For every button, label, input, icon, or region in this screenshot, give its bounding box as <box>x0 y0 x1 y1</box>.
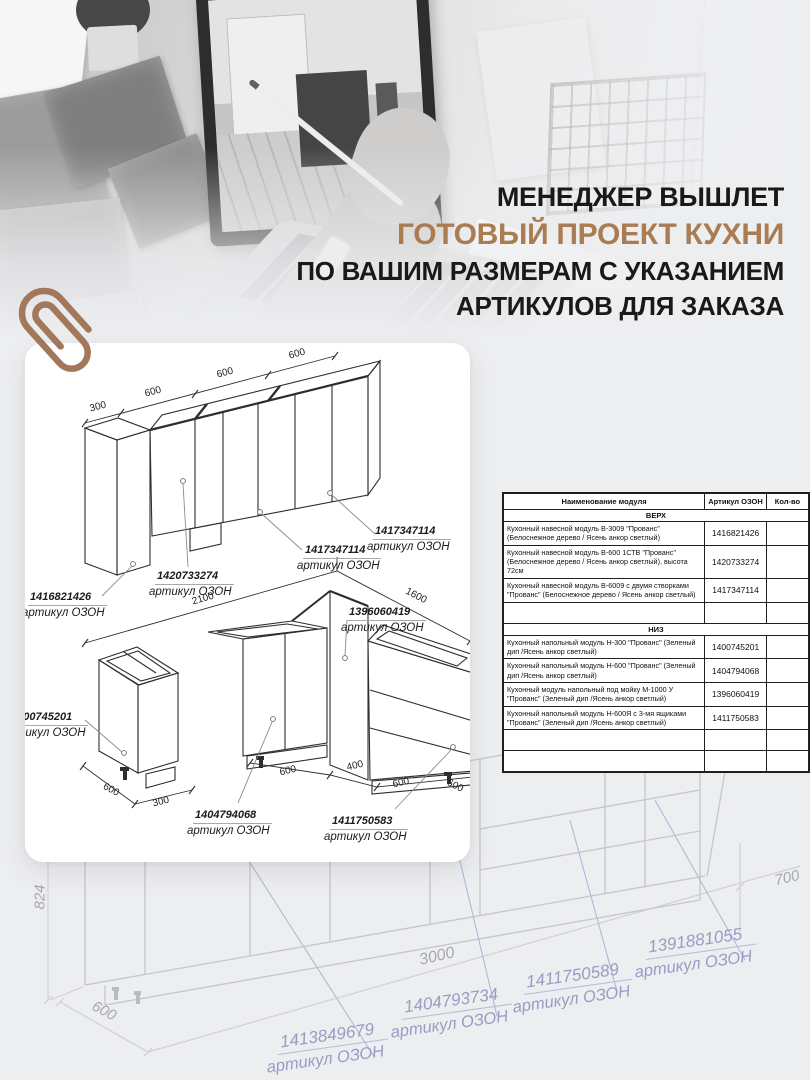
article-cell: 1420733274 <box>705 545 767 578</box>
article-label: 1420733274 артикул ОЗОН <box>155 565 234 600</box>
module-name-cell <box>503 751 705 772</box>
article-caption: артикул ОЗОН <box>367 541 451 555</box>
article-cell: 1404794068 <box>705 659 767 683</box>
article-cell <box>705 730 767 751</box>
article-label: 1396060419 артикул ОЗОН <box>347 601 426 636</box>
article-number: 1400745201 <box>25 711 88 726</box>
headline-line-3: ПО ВАШИМ РАЗМЕРАМ С УКАЗАНИЕМ <box>296 258 784 284</box>
article-cell: 1400745201 <box>705 635 767 659</box>
table-row: Кухонный навесной модуль В-3009 "Прованс… <box>503 522 809 546</box>
quantity-cell <box>766 545 809 578</box>
module-name-cell <box>503 602 705 623</box>
table-row: Кухонный напольный модуль Н-600 "Прованс… <box>503 659 809 683</box>
column-header: Наименование модуля <box>503 493 705 510</box>
article-caption: артикул ОЗОН <box>187 825 272 839</box>
article-cell: 1416821426 <box>705 522 767 546</box>
article-cell: 1411750583 <box>705 706 767 730</box>
dimension-824: 824 <box>32 884 49 909</box>
module-name-cell: Кухонный напольный модуль Н-600Я с 3-мя … <box>503 706 705 730</box>
table-row: Кухонный навесной модуль В-6009 с двумя … <box>503 578 809 602</box>
page: МЕНЕДЖЕР ВЫШЛЕТ ГОТОВЫЙ ПРОЕКТ КУХНИ ПО … <box>0 0 810 1080</box>
article-cell <box>705 751 767 772</box>
article-caption: артикул ОЗОН <box>149 586 234 600</box>
quantity-cell <box>766 522 809 546</box>
table-row: Кухонный напольный модуль Н-300 "Прованс… <box>503 635 809 659</box>
article-caption: артикул ОЗОН <box>341 622 426 636</box>
section-row: НИЗ <box>503 623 809 635</box>
module-spec-table: Наименование модуляАртикул ОЗОНКол-воВЕР… <box>502 492 810 773</box>
headline-line-1: МЕНЕДЖЕР ВЫШЛЕТ <box>296 184 784 211</box>
article-number: 1420733274 <box>155 570 234 585</box>
article-caption: артикул ОЗОН <box>324 831 408 845</box>
quantity-cell <box>766 602 809 623</box>
section-row: ВЕРХ <box>503 510 809 522</box>
article-label: 1404794068 артикул ОЗОН <box>193 804 272 839</box>
article-cell: 1396060419 <box>705 682 767 706</box>
article-number: 1417347114 <box>373 525 451 540</box>
article-caption: артикул ОЗОН <box>297 560 381 574</box>
table-row <box>503 751 809 772</box>
section-title: ВЕРХ <box>503 510 809 522</box>
article-caption: артикул ОЗОН <box>25 607 107 621</box>
column-header: Кол-во <box>766 493 809 510</box>
quantity-cell <box>766 635 809 659</box>
article-number: 1411750583 <box>330 815 408 830</box>
spec-table-container: Наименование модуляАртикул ОЗОНКол-воВЕР… <box>502 492 810 773</box>
article-cell <box>705 602 767 623</box>
headline: МЕНЕДЖЕР ВЫШЛЕТ ГОТОВЫЙ ПРОЕКТ КУХНИ ПО … <box>296 184 784 319</box>
paperclip-icon <box>10 280 106 380</box>
article-caption: артикул ОЗОН <box>25 727 88 741</box>
quantity-cell <box>766 730 809 751</box>
module-name-cell: Кухонный напольный модуль Н-300 "Прованс… <box>503 635 705 659</box>
article-label: 1416821426 артикул ОЗОН <box>28 586 107 621</box>
headline-line-4: АРТИКУЛОВ ДЛЯ ЗАКАЗА <box>296 293 784 319</box>
project-card: 300 600 600 600 2100 1600 600 300 600 40… <box>25 343 470 862</box>
quantity-cell <box>766 659 809 683</box>
article-label: 1400745201 артикул ОЗОН <box>25 706 88 741</box>
module-name-cell: Кухонный напольный модуль Н-600 "Прованс… <box>503 659 705 683</box>
module-name-cell: Кухонный навесной модуль В-6009 с двумя … <box>503 578 705 602</box>
module-name-cell: Кухонный навесной модуль В-600 1СТВ "Про… <box>503 545 705 578</box>
column-header: Артикул ОЗОН <box>705 493 767 510</box>
table-row <box>503 602 809 623</box>
article-number: 1404794068 <box>193 809 272 824</box>
module-name-cell <box>503 730 705 751</box>
table-row: Кухонный модуль напольный под мойку М-10… <box>503 682 809 706</box>
quantity-cell <box>766 578 809 602</box>
table-header-row: Наименование модуляАртикул ОЗОНКол-во <box>503 493 809 510</box>
quantity-cell <box>766 751 809 772</box>
section-title: НИЗ <box>503 623 809 635</box>
quantity-cell <box>766 682 809 706</box>
article-label: 1411750583 артикул ОЗОН <box>330 810 408 845</box>
quantity-cell <box>766 706 809 730</box>
table-row: Кухонный напольный модуль Н-600Я с 3-мя … <box>503 706 809 730</box>
module-name-cell: Кухонный навесной модуль В-3009 "Прованс… <box>503 522 705 546</box>
table-row <box>503 730 809 751</box>
headline-line-2-accent: ГОТОВЫЙ ПРОЕКТ КУХНИ <box>296 220 784 250</box>
table-row: Кухонный навесной модуль В-600 1СТВ "Про… <box>503 545 809 578</box>
article-label: 1417347114 артикул ОЗОН <box>373 520 451 555</box>
article-cell: 1417347114 <box>705 578 767 602</box>
article-number: 1416821426 <box>28 591 107 606</box>
article-number: 1396060419 <box>347 606 426 621</box>
module-name-cell: Кухонный модуль напольный под мойку М-10… <box>503 682 705 706</box>
